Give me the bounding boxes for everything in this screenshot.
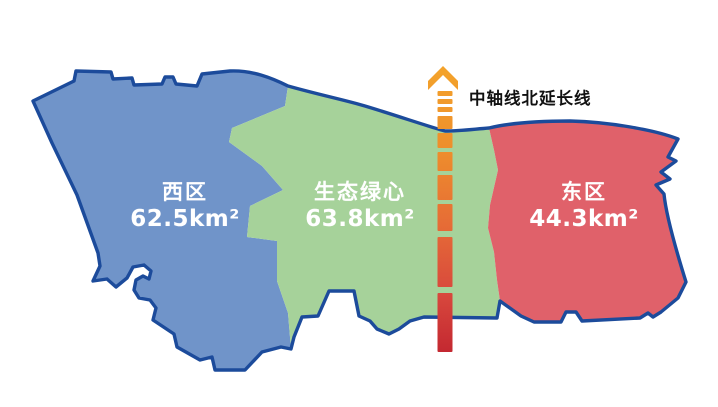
planning-map: 西区 62.5km² 生态绿心 63.8km² 东区 44.3km² 中轴线北延… [0,0,718,407]
map-canvas [0,0,718,407]
east-district-shape [488,121,686,322]
axis-line-label: 中轴线北延长线 [469,85,592,109]
axis-arrow-icon [428,66,458,90]
